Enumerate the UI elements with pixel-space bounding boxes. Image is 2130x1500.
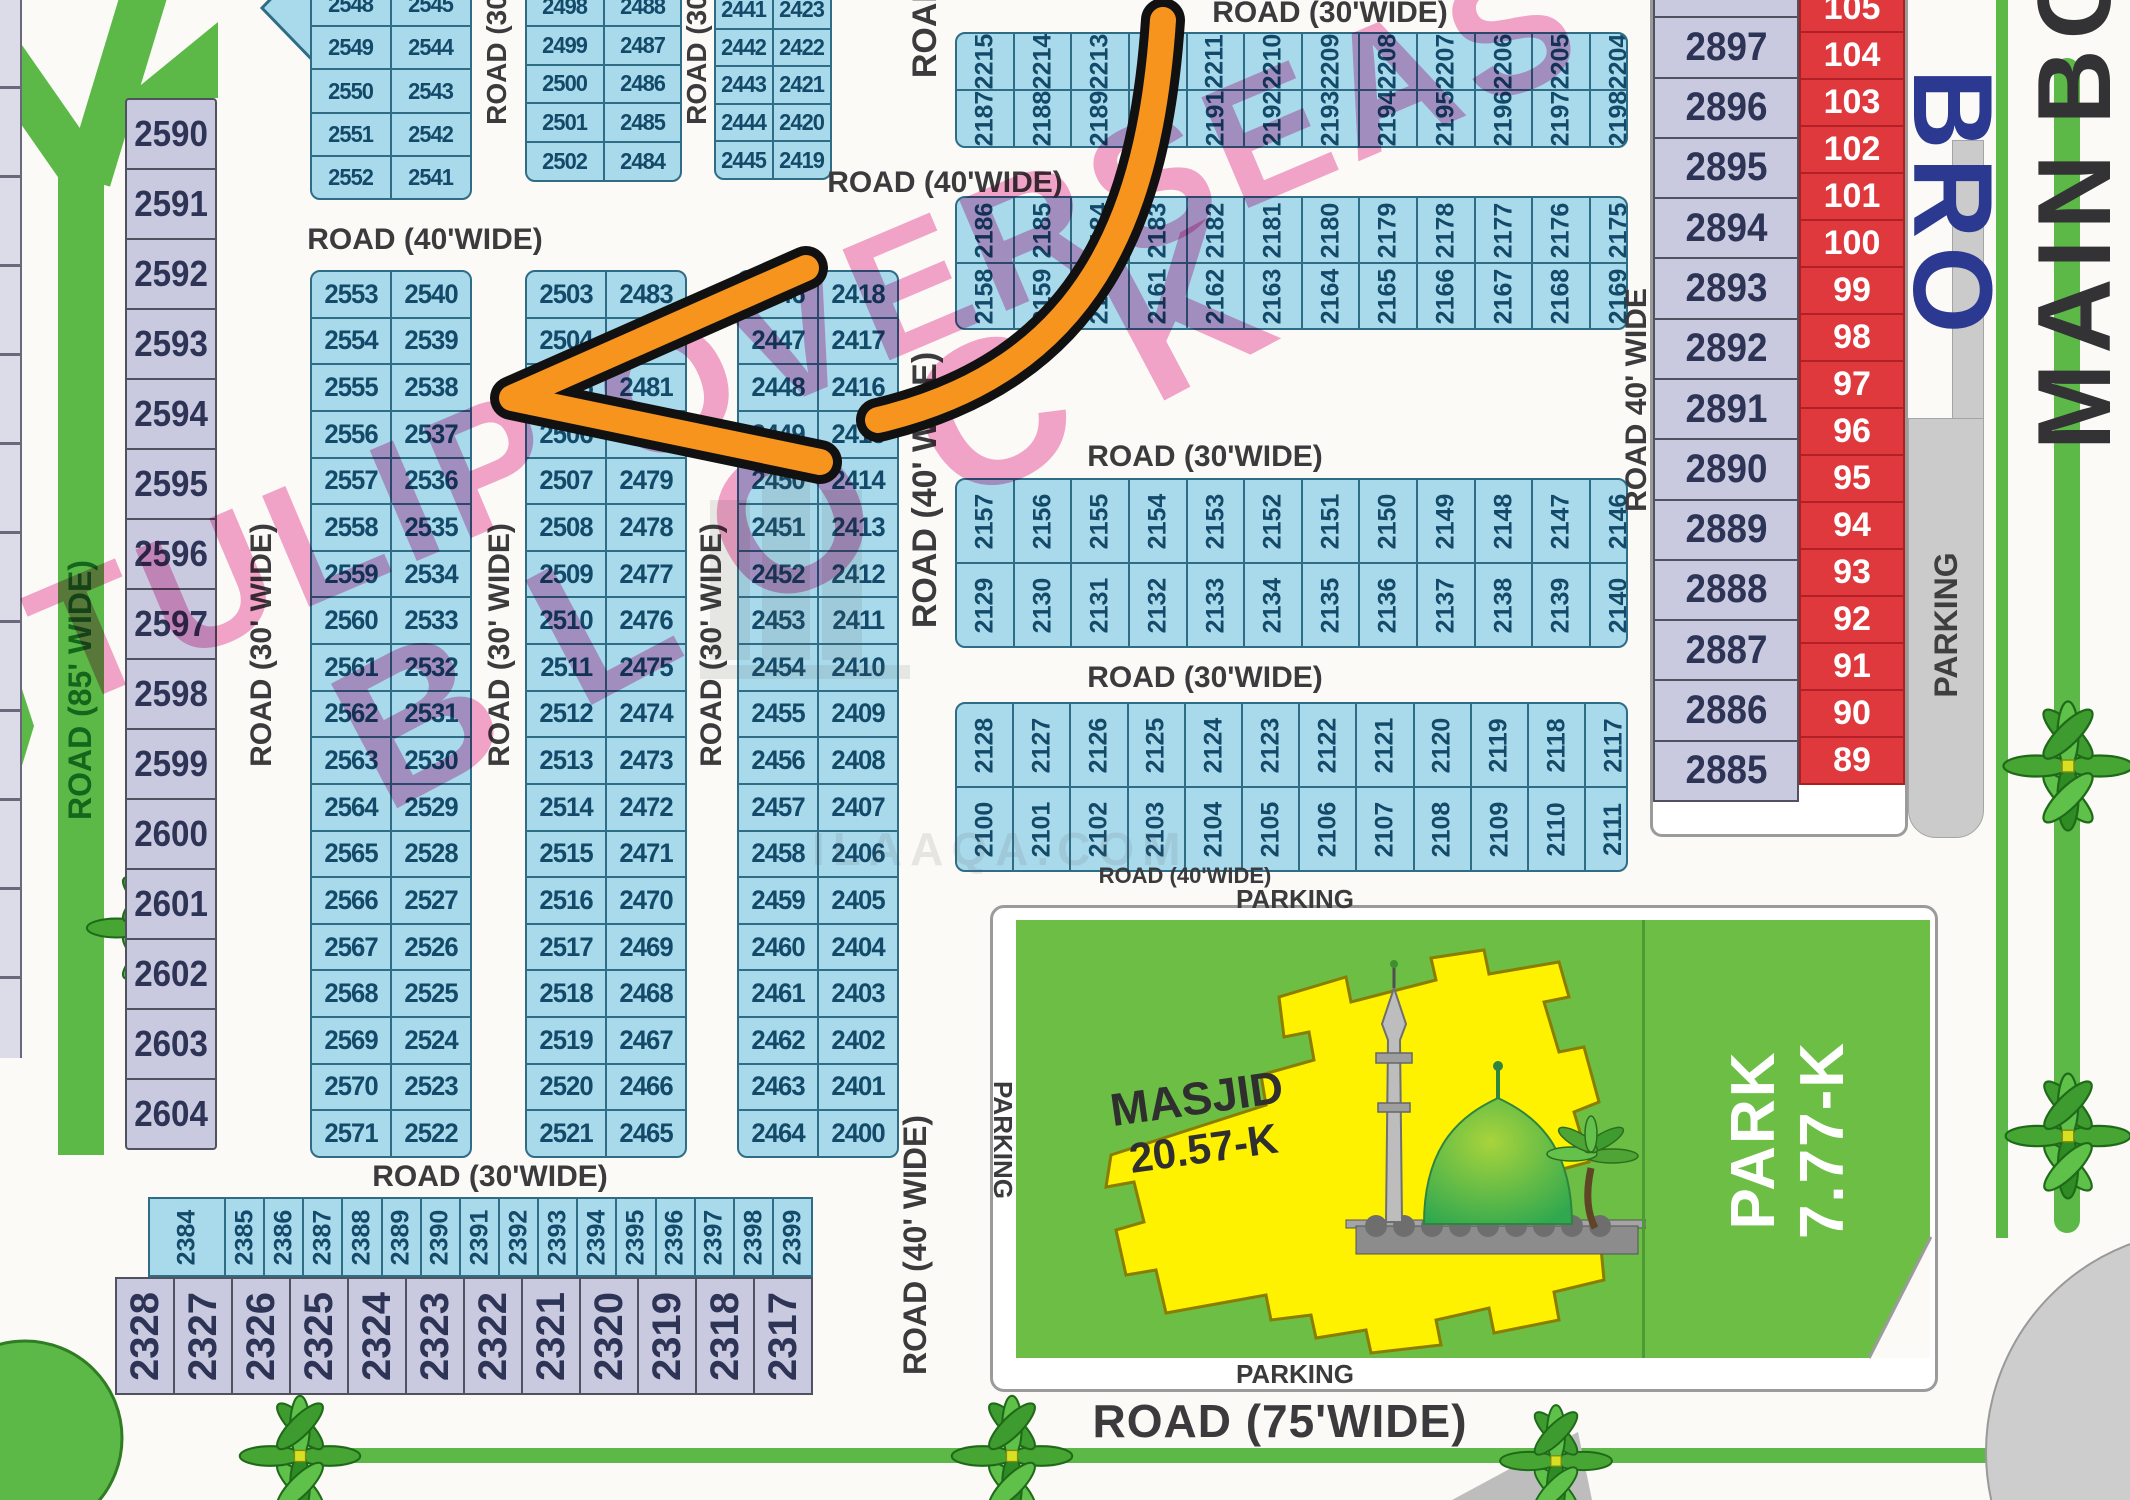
plot-number: 2385 — [230, 1209, 259, 1265]
plot-number: 2208 — [1374, 34, 1403, 90]
plot-column-1: 2553254025542539255525382556253725572536… — [310, 270, 472, 1158]
plot-number: 2463 — [751, 1071, 804, 1102]
plot-pair: 24982488 — [527, 0, 680, 25]
plot-pair: 24592405 — [739, 876, 897, 923]
plot-number: 2467 — [619, 1025, 672, 1056]
plot-number: 2590 — [134, 113, 208, 155]
plot-number: 2117 — [1599, 718, 1628, 772]
plot-cell: 2393 — [537, 1199, 576, 1275]
plot-number: 2160 — [1086, 268, 1115, 324]
plot-number: 2471 — [619, 838, 672, 869]
plot-number: 2505 — [539, 372, 592, 403]
strip-1-bottom-row: 2187218821892190219121922193219421952196… — [957, 89, 1628, 146]
plot-number: 2511 — [540, 652, 592, 683]
plot-cell: 2394 — [576, 1199, 615, 1275]
plot-number: 2198 — [1604, 91, 1628, 147]
plot-number: 2600 — [134, 813, 208, 855]
plot-cell: 2320 — [579, 1279, 637, 1393]
plot-number: 2204 — [1604, 34, 1628, 90]
plot-cell: 2181 — [1243, 198, 1301, 262]
road-label-30-mid1: ROAD (30'WIDE) — [1087, 442, 1322, 472]
park-name: PARK — [1719, 1050, 1788, 1229]
plot-number: 2482 — [619, 325, 672, 356]
main-boulevard-label: MAINBOUL — [2015, 0, 2130, 455]
plot-number: 2473 — [619, 745, 672, 776]
plot-number: 2319 — [645, 1292, 690, 1381]
plot-number: 2130 — [1028, 577, 1057, 633]
plot-cell: 2892 — [1655, 318, 1797, 378]
plot-pair: 25012485 — [527, 102, 680, 141]
plot-number: 2324 — [355, 1292, 400, 1381]
plot-cell: 2325 — [289, 1279, 347, 1393]
plot-number: 2465 — [619, 1118, 672, 1149]
plot-pair: 25082478 — [527, 503, 685, 550]
plot-number: 2485 — [620, 109, 665, 136]
plot-pair: 24432421 — [716, 65, 830, 103]
strip-3-top-row: 2157215621552154215321522151215021492148… — [957, 480, 1628, 562]
plot-cell: 2388 — [341, 1199, 380, 1275]
plot-number: 2323 — [413, 1292, 458, 1381]
plot-number: 2476 — [619, 605, 672, 636]
plot-number: 2523 — [404, 1071, 457, 1102]
plot-cell: 2126 — [1069, 704, 1126, 786]
plot-number: 2530 — [404, 745, 457, 776]
plot-cell: 2105 — [1241, 788, 1298, 870]
plot-cell: 2107 — [1355, 788, 1412, 870]
plot-number: 92 — [1833, 600, 1871, 639]
plot-number: 2420 — [780, 109, 825, 136]
plot-column-1-top: 2548254525492544255025432551254225522541 — [310, 0, 472, 200]
plot-cell: 2399 — [772, 1199, 811, 1275]
plot-cell: 2167 — [1474, 264, 1532, 328]
plot-cell: 2136 — [1358, 564, 1416, 646]
plot-number: 2387 — [308, 1209, 337, 1265]
plot-cell: 2190 — [1128, 91, 1186, 146]
plot-number: 2181 — [1258, 202, 1287, 258]
plot-pair: 24462418 — [739, 272, 897, 317]
plot-cell: 2182 — [1186, 198, 1244, 262]
plot-number: 2213 — [1086, 34, 1115, 90]
plot-number: 2896 — [1685, 85, 1767, 130]
plot-pair: 25682525 — [312, 969, 470, 1016]
road-label-30-mid2: ROAD (30'WIDE) — [1087, 663, 1322, 693]
park-area: 7.77-K — [1788, 1041, 1857, 1239]
plot-pair: 25192467 — [527, 1016, 685, 1063]
plot-number: 2166 — [1431, 268, 1460, 324]
plot-number: 2506 — [539, 419, 592, 450]
plot-number: 2325 — [297, 1292, 342, 1381]
plot-pair: 25562537 — [312, 410, 470, 457]
plot-pair: 25592534 — [312, 550, 470, 597]
plot-cell: 2600 — [127, 798, 215, 868]
road-label-30v-1: ROAD (30' WIDE) — [247, 523, 277, 767]
plot-pair: 25072479 — [527, 457, 685, 504]
plot-cell: 2135 — [1301, 564, 1359, 646]
plot-cell: 2328 — [117, 1279, 173, 1393]
plot-number: 2188 — [1028, 91, 1057, 147]
plot-number: 2893 — [1685, 266, 1767, 311]
road-label-40-left: ROAD (40'WIDE) — [307, 225, 542, 255]
plot-pair: 25512542 — [312, 112, 470, 155]
plot-number: 2122 — [1313, 717, 1342, 773]
plot-cell: 2590 — [127, 100, 215, 168]
plot-number: 2556 — [324, 419, 377, 450]
plot-number: 2543 — [409, 78, 454, 105]
plot-cell: 2138 — [1474, 564, 1532, 646]
plot-pair: 25142472 — [527, 783, 685, 830]
plot-cell: 2204 — [1589, 34, 1628, 89]
plot-number: 2469 — [619, 932, 672, 963]
masjid-park-divider — [1642, 920, 1645, 1358]
plot-number: 2111 — [1599, 803, 1628, 856]
plot-number: 2209 — [1316, 34, 1345, 90]
plot-number: 2897 — [1685, 25, 1767, 70]
plot-number: 2531 — [404, 698, 457, 729]
plot-pair: 24642400 — [739, 1109, 897, 1156]
plot-cell: 2897 — [1655, 16, 1797, 76]
strip-3-bottom-row: 2129213021312132213321342135213621372138… — [957, 562, 1628, 646]
plot-number: 2186 — [970, 202, 999, 258]
parking-label-top: PARKING — [1236, 886, 1354, 912]
plot-number: 2554 — [324, 325, 377, 356]
plot-cell: 2390 — [420, 1199, 459, 1275]
plot-number: 90 — [1833, 694, 1871, 733]
plot-number: 2443 — [722, 71, 767, 98]
plot-number: 2135 — [1316, 577, 1345, 633]
plot-number: 2456 — [751, 745, 804, 776]
plot-number: 2391 — [465, 1209, 494, 1265]
plot-cell: 2157 — [957, 480, 1013, 562]
plot-strip-3: 2157215621552154215321522151215021492148… — [955, 478, 1628, 648]
plot-cell: 2118 — [1527, 704, 1584, 786]
plot-number: 2442 — [722, 34, 767, 61]
plot-number: 2182 — [1201, 202, 1230, 258]
plot-number: 2399 — [778, 1209, 807, 1265]
plot-pair: 25602533 — [312, 596, 470, 643]
plot-number: 104 — [1824, 36, 1881, 75]
plot-cell: 2156 — [1013, 480, 1071, 562]
plot-number: 2317 — [761, 1292, 806, 1381]
plot-cell: 2212 — [1128, 34, 1186, 89]
plot-pair: 25702523 — [312, 1063, 470, 1110]
plot-cell: 2595 — [127, 448, 215, 518]
plot-pair: 24452419 — [716, 140, 830, 178]
plot-cell: 2324 — [347, 1279, 405, 1393]
plot-pair: 25032483 — [527, 272, 685, 317]
park-label: PARK 7.77-K — [1708, 990, 1868, 1290]
plot-number: 2123 — [1256, 717, 1285, 773]
bottom-lavender-row: 2328232723262325232423232322232123202319… — [115, 1277, 813, 1395]
plot-cell: 2166 — [1416, 264, 1474, 328]
plot-cell: 2208 — [1358, 34, 1416, 89]
plot-number: 2462 — [751, 1025, 804, 1056]
plot-number: 2526 — [404, 932, 457, 963]
plot-number: 2541 — [409, 164, 454, 191]
plot-number: 2423 — [780, 0, 825, 23]
plot-number: 2512 — [539, 698, 592, 729]
plot-number: 98 — [1833, 318, 1871, 357]
plot-cell: 2104 — [1184, 788, 1241, 870]
plot-number: 2192 — [1258, 91, 1287, 147]
plot-pair: 25692524 — [312, 1016, 470, 1063]
plot-number: 2416 — [831, 372, 884, 403]
plot-pair: 25042482 — [527, 317, 685, 364]
plot-number: 2529 — [404, 792, 457, 823]
plot-pair: 25502543 — [312, 68, 470, 111]
plot-cell: 2398 — [733, 1199, 772, 1275]
road-label-40v-top: ROAD (40' WIDE) — [908, 0, 942, 78]
plot-cell: 2123 — [1241, 704, 1298, 786]
plot-number: 2418 — [831, 279, 884, 310]
boulevard-letter: B — [2016, 49, 2130, 124]
plot-cell: 94 — [1801, 501, 1903, 548]
plot-number: 2508 — [539, 512, 592, 543]
plot-cell: 97 — [1801, 360, 1903, 407]
plot-cell: 2109 — [1470, 788, 1527, 870]
plot-number: 2517 — [539, 932, 592, 963]
plot-cell: 2149 — [1416, 480, 1474, 562]
plot-number: 2152 — [1258, 493, 1287, 549]
plot-cell: 2207 — [1416, 34, 1474, 89]
plot-number: 2119 — [1485, 718, 1514, 772]
plot-cell: 2193 — [1301, 91, 1359, 146]
plot-cell: 2125 — [1127, 704, 1184, 786]
plot-number: 2499 — [542, 32, 587, 59]
plot-number: 2444 — [722, 109, 767, 136]
plot-number: 2398 — [739, 1209, 768, 1265]
plot-cell: 2391 — [459, 1199, 498, 1275]
plot-number: 2183 — [1143, 202, 1172, 258]
plot-number: 2139 — [1547, 577, 1576, 633]
plot-number: 2559 — [324, 559, 377, 590]
plot-number: 101 — [1824, 177, 1881, 216]
plot-number: 2472 — [619, 792, 672, 823]
plot-cell: 2594 — [127, 378, 215, 448]
plot-number: 2326 — [239, 1292, 284, 1381]
plot-number: 2327 — [181, 1292, 226, 1381]
plot-number: 2528 — [404, 838, 457, 869]
plot-number: 2895 — [1685, 145, 1767, 190]
plot-number: 2136 — [1374, 577, 1403, 633]
plot-pair: 24412423 — [716, 0, 830, 28]
plot-number: 2486 — [620, 70, 665, 97]
plot-number: 2321 — [529, 1292, 574, 1381]
plot-number: 2548 — [329, 0, 374, 18]
plot-pair: 25662527 — [312, 876, 470, 923]
plot-cell: 2885 — [1655, 740, 1797, 800]
plot-cell: 2176 — [1531, 198, 1589, 262]
plot-cell: 2175 — [1589, 198, 1628, 262]
plot-cell: 2147 — [1531, 480, 1589, 562]
plot-cell: 2154 — [1128, 480, 1186, 562]
plot-number: 2394 — [582, 1209, 611, 1265]
plot-cell: 2162 — [1186, 264, 1244, 328]
plot-number: 2599 — [134, 743, 208, 785]
plot-cell: 2151 — [1301, 480, 1359, 562]
road-label-85: ROAD (85' WIDE) — [64, 560, 96, 820]
plot-cell: 2192 — [1243, 91, 1301, 146]
plot-number: 2563 — [324, 745, 377, 776]
plot-number: 2392 — [504, 1209, 533, 1265]
plot-cell: 2119 — [1470, 704, 1527, 786]
plot-number: 2887 — [1685, 628, 1767, 673]
road-label-40v-mid: ROAD (40' WIDE) — [908, 352, 942, 628]
plot-cell: 2188 — [1013, 91, 1071, 146]
plot-number: 2110 — [1542, 802, 1571, 856]
plot-number: 2404 — [831, 932, 884, 963]
strip-2-bottom-row: 2158215921602161216221632164216521662167… — [957, 262, 1628, 328]
boulevard-letter: A — [2016, 278, 2130, 353]
plot-cell: 2133 — [1186, 564, 1244, 646]
plot-number: 2196 — [1489, 91, 1518, 147]
plot-cell: 2164 — [1301, 264, 1359, 328]
plot-pair: 25572536 — [312, 457, 470, 504]
plot-number: 2165 — [1374, 268, 1403, 324]
plot-cell: 2887 — [1655, 619, 1797, 679]
plot-number: 2514 — [539, 792, 592, 823]
plot-cell: 2120 — [1413, 704, 1470, 786]
plot-number: 2604 — [134, 1093, 208, 1135]
plot-number: 2509 — [539, 559, 592, 590]
plot-number: 2532 — [404, 652, 457, 683]
plot-cell: 2191 — [1186, 91, 1244, 146]
plot-number: 2207 — [1431, 34, 1460, 90]
plot-number: 2175 — [1604, 202, 1628, 258]
plot-cell: 89 — [1801, 736, 1903, 783]
plot-number: 2190 — [1143, 91, 1172, 147]
road-label-30v-3: ROAD (30' WIDE) — [697, 523, 727, 767]
plot-pair: 25092477 — [527, 550, 685, 597]
plot-cell: 104 — [1801, 31, 1903, 78]
plot-number: 2132 — [1143, 577, 1172, 633]
plot-pair: 25162470 — [527, 876, 685, 923]
plot-pair: 24612403 — [739, 969, 897, 1016]
plot-number: 2121 — [1371, 717, 1400, 773]
plot-number: 2159 — [1028, 268, 1057, 324]
plot-number: 2147 — [1547, 493, 1576, 549]
plot-cell: 2179 — [1358, 198, 1416, 262]
plot-cell: 2159 — [1013, 264, 1071, 328]
plot-cell: 2392 — [498, 1199, 537, 1275]
plot-number: 2195 — [1431, 91, 1460, 147]
plot-number: 2894 — [1685, 206, 1767, 251]
plot-number: 2163 — [1258, 268, 1287, 324]
plot-number: 2591 — [134, 183, 208, 225]
plot-number: 2487 — [620, 32, 665, 59]
plot-cell: 2895 — [1655, 137, 1797, 197]
plot-number: 2498 — [542, 0, 587, 20]
plot-number: 2544 — [409, 34, 454, 61]
plot-number: 2569 — [324, 1025, 377, 1056]
plot-number: 2149 — [1431, 493, 1460, 549]
plot-number: 93 — [1833, 553, 1871, 592]
plot-number: 2503 — [539, 279, 592, 310]
plot-number: 2397 — [700, 1209, 729, 1265]
plot-cell: 2886 — [1655, 679, 1797, 739]
plot-number: 2193 — [1316, 91, 1345, 147]
plot-number: 2157 — [970, 493, 999, 549]
plot-number: 2535 — [404, 512, 457, 543]
road-label-30v-top1: ROAD (30'WIDE) — [483, 0, 511, 125]
plot-cell: 2128 — [957, 704, 1012, 786]
plot-cell: 95 — [1801, 454, 1903, 501]
plot-number: 2447 — [751, 325, 804, 356]
plot-number: 2148 — [1489, 493, 1518, 549]
plot-number: 2210 — [1258, 34, 1287, 90]
plot-number: 2109 — [1485, 801, 1514, 857]
plot-number: 2603 — [134, 1023, 208, 1065]
plot-cell: 2322 — [463, 1279, 521, 1393]
plot-number: 2890 — [1685, 447, 1767, 492]
plot-cell: 2161 — [1128, 264, 1186, 328]
plot-cell: 2592 — [127, 238, 215, 308]
plot-cell: 2395 — [615, 1199, 654, 1275]
plot-cell: 2196 — [1474, 91, 1532, 146]
boulevard-letter: O — [2016, 0, 2130, 39]
plot-number: 2561 — [324, 652, 377, 683]
plot-number: 2564 — [324, 792, 377, 823]
plot-cell: 2131 — [1070, 564, 1128, 646]
plot-cell: 2599 — [127, 728, 215, 798]
plot-number: 2156 — [1028, 493, 1057, 549]
plot-number: 2539 — [404, 325, 457, 356]
plot-number: 2500 — [542, 70, 587, 97]
plot-cell: 2321 — [521, 1279, 579, 1393]
plot-cell: 2168 — [1531, 264, 1589, 328]
road-label-30-bottom: ROAD (30'WIDE) — [372, 1162, 607, 1192]
plot-cell: 2593 — [127, 308, 215, 378]
plot-pair: 24472417 — [739, 317, 897, 364]
plot-column-3: 2446241824472417244824162449241524502414… — [737, 270, 899, 1158]
plot-cell: 2211 — [1186, 34, 1244, 89]
plot-number: 2889 — [1685, 507, 1767, 552]
plot-number: 2597 — [134, 603, 208, 645]
plot-number: 2596 — [134, 533, 208, 575]
plot-number: 2525 — [404, 978, 457, 1009]
plot-number: 2158 — [970, 268, 999, 324]
plot-cell: 2597 — [127, 588, 215, 658]
plot-pair: 24442420 — [716, 103, 830, 141]
plot-pair: 25182468 — [527, 969, 685, 1016]
plot-cell: 2178 — [1416, 198, 1474, 262]
road-label-75: ROAD (75'WIDE) — [1092, 1398, 1467, 1444]
plot-cell: 2326 — [231, 1279, 289, 1393]
plot-cell: 2596 — [127, 518, 215, 588]
plot-number: 2120 — [1428, 717, 1457, 773]
road-label-30-top: ROAD (30'WIDE) — [1212, 0, 1447, 28]
plot-number: 2502 — [542, 148, 587, 175]
plot-number: 2540 — [404, 279, 457, 310]
plot-pair: 25212465 — [527, 1109, 685, 1156]
plot-cell: 2889 — [1655, 499, 1797, 559]
plot-cell: 2209 — [1301, 34, 1359, 89]
plot-number: 2150 — [1374, 493, 1403, 549]
plot-number: 2388 — [348, 1209, 377, 1265]
plot-cell: 2180 — [1301, 198, 1359, 262]
plot-number: 2154 — [1143, 493, 1172, 549]
plot-pair: 24602404 — [739, 923, 897, 970]
plot-number: 2458 — [751, 838, 804, 869]
plot-pair: 24562408 — [739, 736, 897, 783]
parking-label-left: PARKING — [990, 1081, 1016, 1199]
plot-number: 2187 — [970, 91, 999, 147]
plot-number: 2407 — [831, 792, 884, 823]
plot-number: 2519 — [539, 1025, 592, 1056]
plot-pair: 25152471 — [527, 830, 685, 877]
plot-number: 99 — [1833, 271, 1871, 310]
plot-number: 2134 — [1258, 577, 1287, 633]
plot-pair: 25582535 — [312, 503, 470, 550]
